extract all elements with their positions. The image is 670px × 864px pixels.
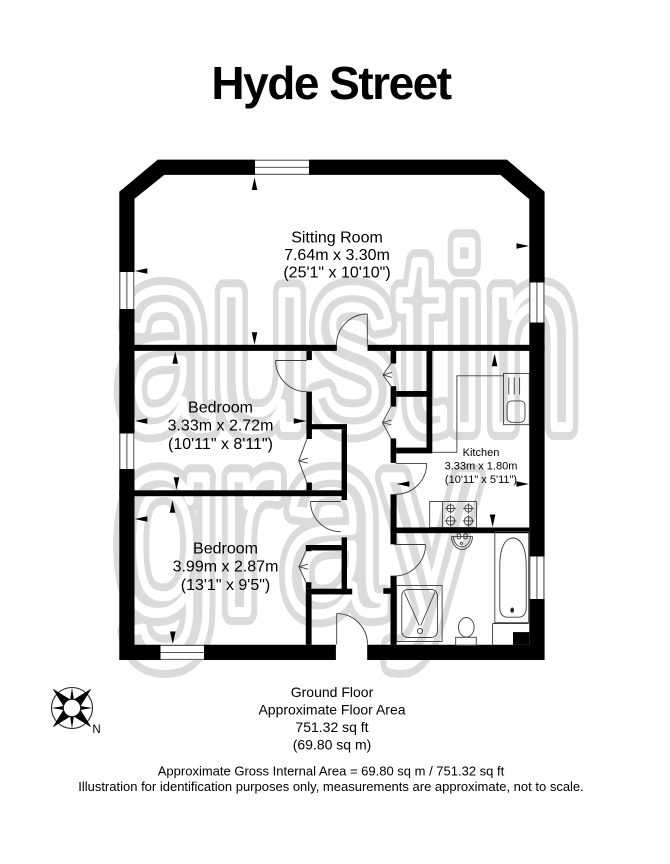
svg-text:(25'1" x 10'10"): (25'1" x 10'10") xyxy=(283,265,390,282)
svg-text:3.33m x 1.80m: 3.33m x 1.80m xyxy=(445,461,518,473)
svg-text:Ground Floor: Ground Floor xyxy=(291,684,374,700)
svg-text:3.99m x 2.87m: 3.99m x 2.87m xyxy=(173,559,279,576)
svg-text:(69.80 sq m): (69.80 sq m) xyxy=(293,737,372,753)
svg-text:Approximate Floor Area: Approximate Floor Area xyxy=(258,702,405,718)
svg-text:Approximate Gross Internal Are: Approximate Gross Internal Area = 69.80 … xyxy=(158,764,505,779)
svg-text:Sitting Room: Sitting Room xyxy=(291,230,383,247)
svg-text:Kitchen: Kitchen xyxy=(463,447,500,459)
svg-text:7.64m x 3.30m: 7.64m x 3.30m xyxy=(284,247,390,264)
svg-text:(13'1" x 9'5"): (13'1" x 9'5") xyxy=(181,577,271,594)
svg-text:751.32 sq ft: 751.32 sq ft xyxy=(295,719,368,735)
svg-text:N: N xyxy=(92,724,100,736)
svg-text:Bedroom: Bedroom xyxy=(188,400,253,417)
svg-text:Bedroom: Bedroom xyxy=(193,541,258,558)
svg-text:Illustration for identificatio: Illustration for identification purposes… xyxy=(78,779,584,794)
svg-text:Hyde Street: Hyde Street xyxy=(211,57,451,109)
svg-text:(10'11" x 5'11"): (10'11" x 5'11") xyxy=(445,474,517,486)
svg-text:(10'11" x 8'11"): (10'11" x 8'11") xyxy=(168,436,273,453)
svg-text:3.33m x 2.72m: 3.33m x 2.72m xyxy=(168,418,274,435)
